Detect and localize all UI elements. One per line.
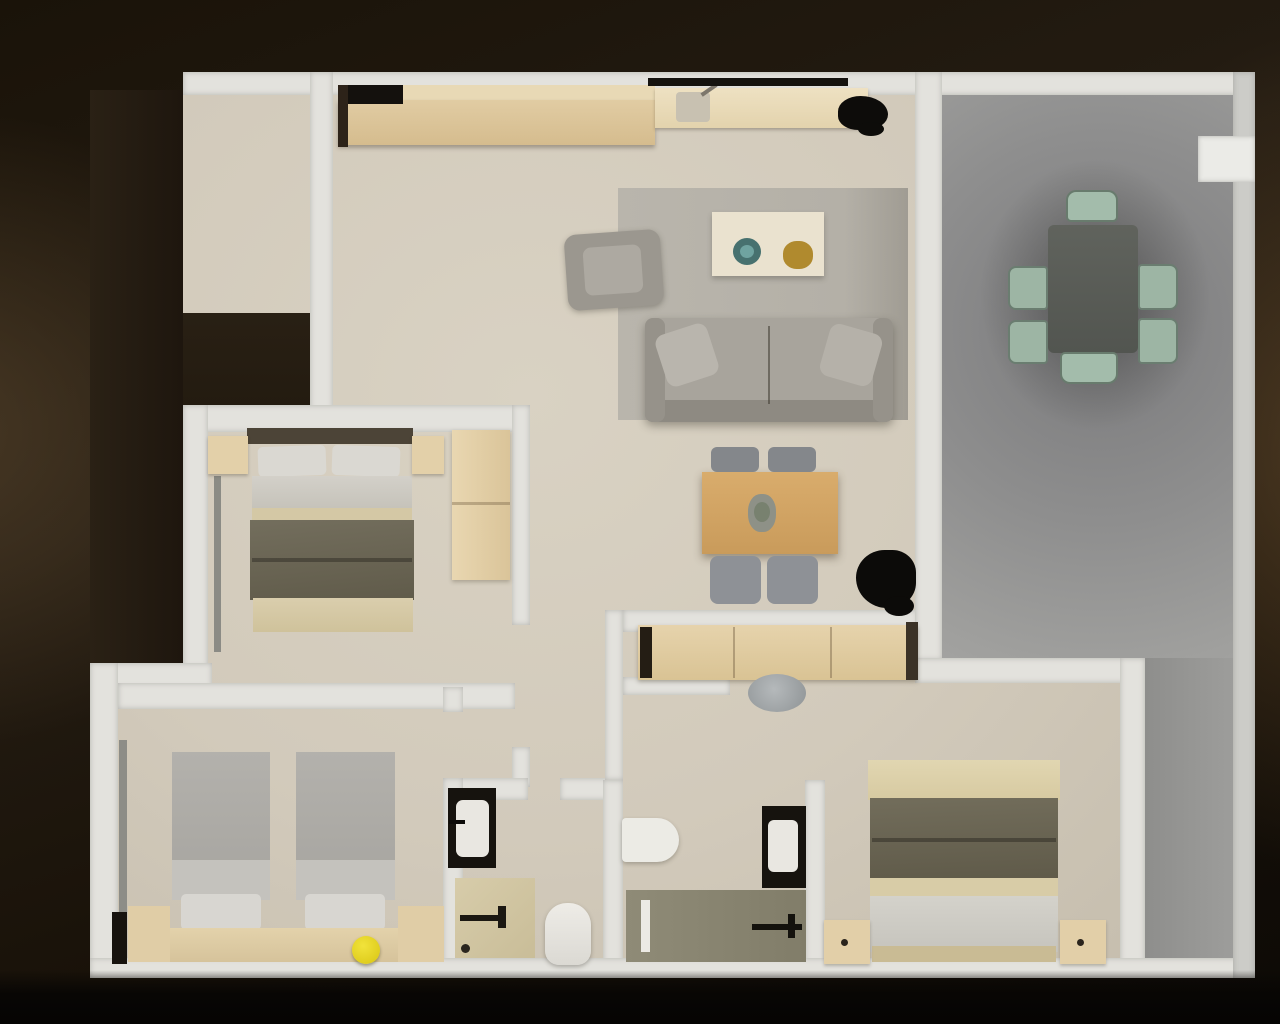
armchair-cushion xyxy=(582,244,643,296)
hallway-dresser-edge xyxy=(906,622,918,680)
bedroom2-yellow-ball xyxy=(352,936,380,964)
floor-plan-render xyxy=(0,0,1280,1024)
bathroom1-shower-head xyxy=(498,906,506,928)
bedroom2-bed-right-duvet xyxy=(296,752,395,866)
floor-plan-canvas xyxy=(0,0,1280,1024)
wall-bedroom1-left xyxy=(183,405,208,667)
bedroom1-bed-headboard xyxy=(247,428,413,444)
terrace-chair-right-1 xyxy=(1138,264,1178,310)
hallway-dresser-seam-1 xyxy=(733,627,735,678)
bedroom1-blanket-fold xyxy=(252,558,412,562)
bedroom1-wardrobe-seam xyxy=(452,502,510,505)
terrace-chair-left-1 xyxy=(1008,266,1048,310)
dining-chair-bottom-left xyxy=(710,556,761,604)
bedroom1-pillow-left xyxy=(257,445,326,477)
bedroom3-bed-sheet xyxy=(870,896,1058,952)
bedroom2-wardrobe-rail xyxy=(119,740,127,916)
kitchen-appliance xyxy=(343,85,403,104)
bedroom3-bed-band xyxy=(870,878,1058,898)
wall-outer-right xyxy=(1233,72,1255,978)
bedroom3-bed-headboard xyxy=(868,760,1060,800)
dining-chair-top-left xyxy=(711,447,759,472)
wall-bedroom2-right-upper xyxy=(443,687,463,712)
wall-entry-left xyxy=(310,72,333,432)
bathroom1-sink xyxy=(456,800,489,857)
terrace-chair-left-2 xyxy=(1008,320,1048,364)
wall-bathrooms-vertical xyxy=(605,610,623,780)
terrace-chair-top xyxy=(1066,190,1118,222)
dining-chair-top-right xyxy=(768,447,816,472)
bedroom1-wardrobe xyxy=(452,430,510,580)
bedroom1-wardrobe-rail xyxy=(214,476,221,652)
hallway-dresser-gap xyxy=(640,627,652,678)
coffee-table-bowl-inner xyxy=(740,245,754,258)
exterior-notch-left xyxy=(90,90,183,663)
wall-master-top xyxy=(915,658,1145,683)
bedroom3-nightstand-left-knob xyxy=(841,939,848,946)
bedroom1-nightstand-left xyxy=(208,436,248,474)
bedroom1-pillow-right xyxy=(331,445,400,477)
bathroom2-shower-stripe xyxy=(641,900,650,952)
bedroom1-nightstand-right xyxy=(412,436,444,474)
bathroom2-sink xyxy=(768,820,798,872)
bedroom1-bed-foot xyxy=(253,598,413,632)
window-top xyxy=(648,78,848,86)
wall-bathrooms-mid xyxy=(603,780,623,978)
exterior-notch-upper-left xyxy=(183,313,310,405)
bedroom2-bed-right-pillow xyxy=(305,894,385,930)
kitchen-counter xyxy=(338,100,655,145)
terrace-chair-bottom xyxy=(1060,352,1118,384)
kitchen-sink xyxy=(676,92,710,122)
wall-living-terrace xyxy=(915,72,942,660)
terrace-table xyxy=(1048,225,1138,353)
coffee-table-decor xyxy=(783,241,813,269)
bathroom1-shower-drain xyxy=(461,944,470,953)
bottom-vignette xyxy=(0,970,1280,1024)
bedroom3-blanket-fold xyxy=(872,838,1056,842)
bedroom3-nightstand-right-knob xyxy=(1077,939,1084,946)
bedroom3-bed-foot xyxy=(872,946,1056,962)
hallway-dresser-seam-2 xyxy=(830,627,832,678)
sofa-seat-seam xyxy=(768,326,770,404)
hallway-pouf xyxy=(748,674,806,712)
bedroom2-bed-left-duvet xyxy=(172,752,270,866)
wall-corridor-upper xyxy=(512,405,530,625)
bathroom2-shower-head xyxy=(788,914,795,938)
hallway-dresser xyxy=(638,625,918,680)
kitchen-counter-end-panel xyxy=(338,85,348,147)
bathroom1-faucet xyxy=(449,820,465,824)
wall-master-left xyxy=(805,780,825,978)
bedroom2-nightstand-left xyxy=(128,906,170,962)
living-plant-leaves xyxy=(884,596,914,616)
bedroom2-nightstand-right xyxy=(398,906,444,962)
terrace-chair-right-2 xyxy=(1138,318,1178,364)
bathroom2-toilet xyxy=(622,818,679,862)
terrace-floor-strip xyxy=(1145,658,1233,960)
bedroom2-rail-dark xyxy=(112,912,127,964)
bedroom1-bed-sheet xyxy=(252,476,412,510)
bedroom2-bed-left-pillow xyxy=(181,894,261,930)
terrace-wall-panel xyxy=(1198,136,1255,182)
entry-plant-leaves xyxy=(858,122,884,136)
wall-master-right xyxy=(1120,658,1145,978)
dining-chair-bottom-right xyxy=(767,556,818,604)
dining-centerpiece-plant xyxy=(754,502,770,522)
bathroom1-toilet xyxy=(545,903,591,965)
